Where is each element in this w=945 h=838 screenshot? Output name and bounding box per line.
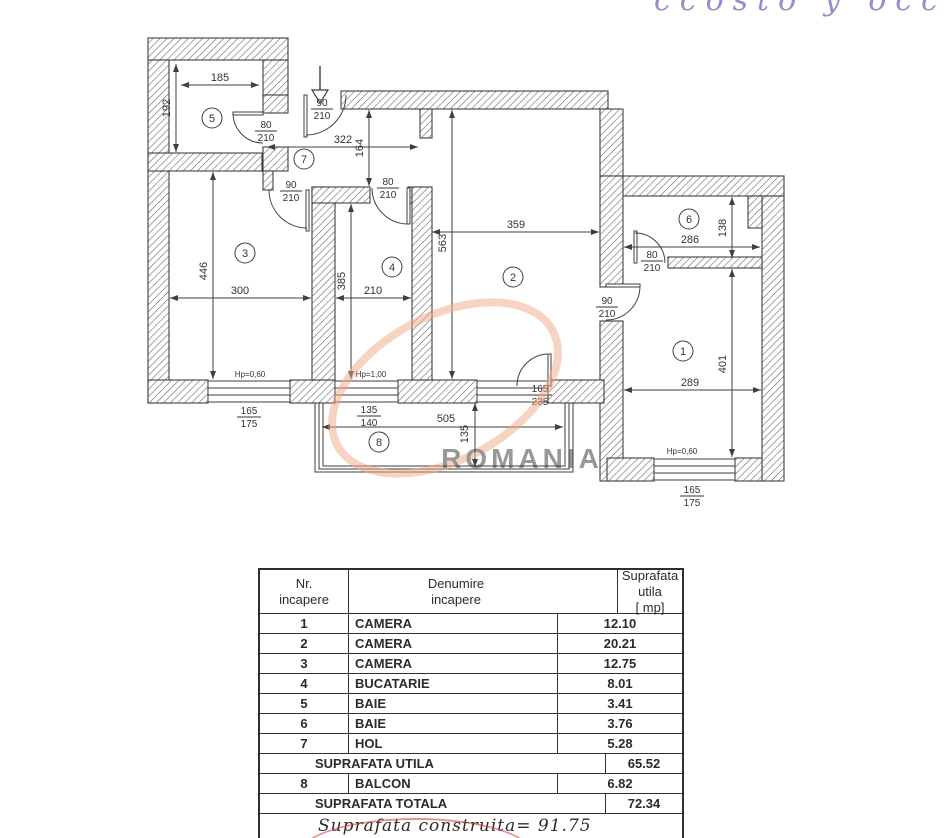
- door-w: 90: [601, 296, 613, 307]
- total-value: 72.34: [606, 796, 682, 811]
- door-size-room1: 90 210: [596, 296, 618, 320]
- hp-label-kitchen: Hp=1,00: [356, 370, 387, 379]
- row-area: 12.10: [558, 616, 682, 631]
- row-nr: 2: [260, 634, 349, 653]
- room-number-1: 1: [680, 346, 686, 358]
- row-area: 12.75: [558, 656, 682, 671]
- header-suprafata-line2: [ mp]: [618, 600, 682, 616]
- room-number-4: 4: [389, 262, 395, 274]
- door-w: 90: [285, 180, 297, 191]
- door-w: 90: [316, 98, 328, 109]
- dim-label-164: 164: [354, 139, 366, 157]
- dim-label-289: 289: [681, 377, 699, 389]
- balcony-row: 8 BALCON 6.82: [260, 773, 682, 793]
- door-h: 210: [599, 309, 616, 320]
- win-h: 140: [361, 418, 378, 429]
- row-nr: 5: [260, 694, 349, 713]
- win-w: 165: [684, 485, 701, 496]
- row-area: 3.76: [558, 716, 682, 731]
- table-row: 4 BUCATARIE 8.01: [260, 673, 682, 693]
- total-row: SUPRAFATA TOTALA 72.34: [260, 793, 682, 813]
- row-name: CAMERA: [349, 654, 558, 673]
- room-number-8: 8: [376, 437, 382, 449]
- door-h: 210: [314, 111, 331, 122]
- door-h: 210: [380, 190, 397, 201]
- row-nr: 1: [260, 614, 349, 633]
- dim-label-359: 359: [507, 219, 525, 231]
- dim-label-446: 446: [198, 262, 210, 280]
- table-row: 5 BAIE 3.41: [260, 693, 682, 713]
- window-size-room3: 165 175: [237, 406, 261, 430]
- header-nr-line1: Nr.: [260, 576, 348, 592]
- table-row: 2 CAMERA 20.21: [260, 633, 682, 653]
- door-h: 210: [258, 133, 275, 144]
- room-number-5: 5: [209, 113, 215, 125]
- win-h: 175: [684, 498, 701, 509]
- header-denumire: Denumire incapere: [349, 570, 618, 613]
- row-area: 20.21: [558, 636, 682, 651]
- dim-label-322: 322: [334, 134, 352, 146]
- dim-label-210: 210: [364, 285, 382, 297]
- row-nr: 7: [260, 734, 349, 753]
- row-area: 8.01: [558, 676, 682, 691]
- dim-label-401: 401: [717, 355, 729, 373]
- dim-label-385: 385: [336, 272, 348, 290]
- door-w: 80: [382, 177, 394, 188]
- header-suprafata-line1: Suprafata utila: [618, 568, 682, 600]
- table-row: 7 HOL 5.28: [260, 733, 682, 753]
- table-row: 1 CAMERA 12.10: [260, 613, 682, 633]
- table-header-row: Nr. incapere Denumire incapere Suprafata…: [260, 570, 682, 613]
- row-nr: 4: [260, 674, 349, 693]
- hp-label-room3: Hp=0,60: [235, 370, 266, 379]
- header-suprafata: Suprafata utila [ mp]: [618, 568, 682, 616]
- dim-label-138: 138: [717, 219, 729, 237]
- dim-label-505: 505: [437, 413, 455, 425]
- door-size-kitchen: 80 210: [377, 177, 399, 201]
- header-denumire-line2: incapere: [355, 592, 557, 608]
- subtotal-row: SUPRAFATA UTILA 65.52: [260, 753, 682, 773]
- row-name: BUCATARIE: [349, 674, 558, 693]
- door-h: 210: [283, 193, 300, 204]
- row-name: BAIE: [349, 694, 558, 713]
- door-w: 80: [646, 250, 658, 261]
- win-w: 135: [361, 405, 378, 416]
- door-size-entrance: 90 210: [311, 98, 333, 122]
- table-row: 6 BAIE 3.76: [260, 713, 682, 733]
- dim-label-286: 286: [681, 234, 699, 246]
- win-w: 165: [241, 406, 258, 417]
- watermark-text: ROMANIA: [441, 443, 603, 474]
- door-size-bath6: 80 210: [641, 250, 663, 274]
- row-area: 6.82: [558, 776, 682, 791]
- row-name: BALCON: [349, 774, 558, 793]
- door-h: 210: [644, 263, 661, 274]
- subtotal-value: 65.52: [606, 756, 682, 771]
- header-nr: Nr. incapere: [260, 570, 349, 613]
- row-nr: 6: [260, 714, 349, 733]
- door-size-room3: 90 210: [280, 180, 302, 204]
- room-number-6: 6: [686, 214, 692, 226]
- scanned-floor-plan-document: ccosto y occ: [0, 0, 945, 838]
- row-name: CAMERA: [349, 614, 558, 633]
- room-number-7: 7: [301, 154, 307, 166]
- dim-label-185: 185: [211, 72, 229, 84]
- row-area: 5.28: [558, 736, 682, 751]
- header-denumire-line1: Denumire: [355, 576, 557, 592]
- table-row: 3 CAMERA 12.75: [260, 653, 682, 673]
- room-number-3: 3: [242, 248, 248, 260]
- row-nr: 3: [260, 654, 349, 673]
- floor-plan-drawing: 185 192 322 164 446 300 385 210 359 563 …: [0, 0, 945, 545]
- row-name: HOL: [349, 734, 558, 753]
- total-label: SUPRAFATA TOTALA: [260, 794, 606, 813]
- window-size-room1: 165 175: [680, 485, 704, 509]
- dim-label-135: 135: [459, 425, 471, 443]
- door-size-bath5: 80 210: [255, 120, 277, 144]
- row-name: CAMERA: [349, 634, 558, 653]
- header-nr-line2: incapere: [260, 592, 348, 608]
- room-number-2: 2: [510, 272, 516, 284]
- dim-label-300: 300: [231, 285, 249, 297]
- row-area: 3.41: [558, 696, 682, 711]
- door-w: 80: [260, 120, 272, 131]
- hp-label-room1: Hp=0,60: [667, 447, 698, 456]
- area-table: Nr. incapere Denumire incapere Suprafata…: [258, 568, 684, 838]
- dim-label-563: 563: [437, 234, 449, 252]
- row-name: BAIE: [349, 714, 558, 733]
- win-h: 175: [241, 419, 258, 430]
- dim-label-192: 192: [161, 99, 173, 117]
- row-nr: 8: [260, 774, 349, 793]
- subtotal-label: SUPRAFATA UTILA: [260, 754, 606, 773]
- window-size-kitchen: 135 140: [357, 405, 381, 429]
